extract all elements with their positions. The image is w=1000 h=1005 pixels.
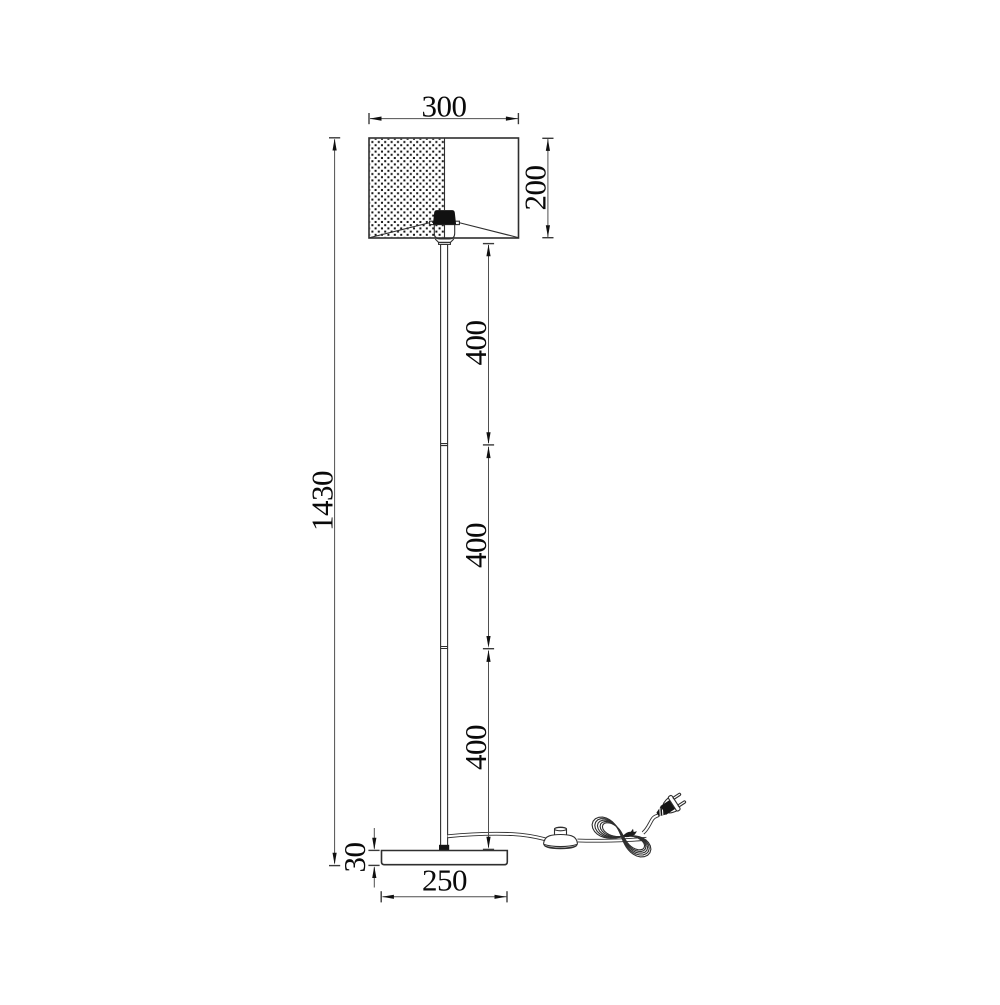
svg-text:30: 30 <box>337 843 372 873</box>
svg-text:300: 300 <box>422 88 467 123</box>
svg-text:200: 200 <box>518 166 553 211</box>
svg-text:1430: 1430 <box>304 471 339 531</box>
svg-text:400: 400 <box>458 523 493 568</box>
svg-text:400: 400 <box>458 725 493 770</box>
svg-text:400: 400 <box>458 321 493 366</box>
svg-text:250: 250 <box>422 863 467 898</box>
